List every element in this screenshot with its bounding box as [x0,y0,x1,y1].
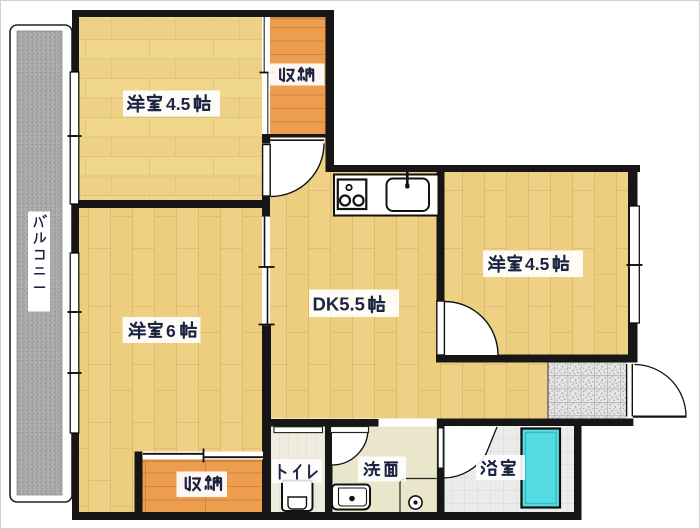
svg-text:4.5: 4.5 [525,254,550,274]
svg-text:DK5.5: DK5.5 [313,294,365,315]
svg-text:4.5: 4.5 [166,94,191,114]
svg-text:6: 6 [166,321,176,341]
